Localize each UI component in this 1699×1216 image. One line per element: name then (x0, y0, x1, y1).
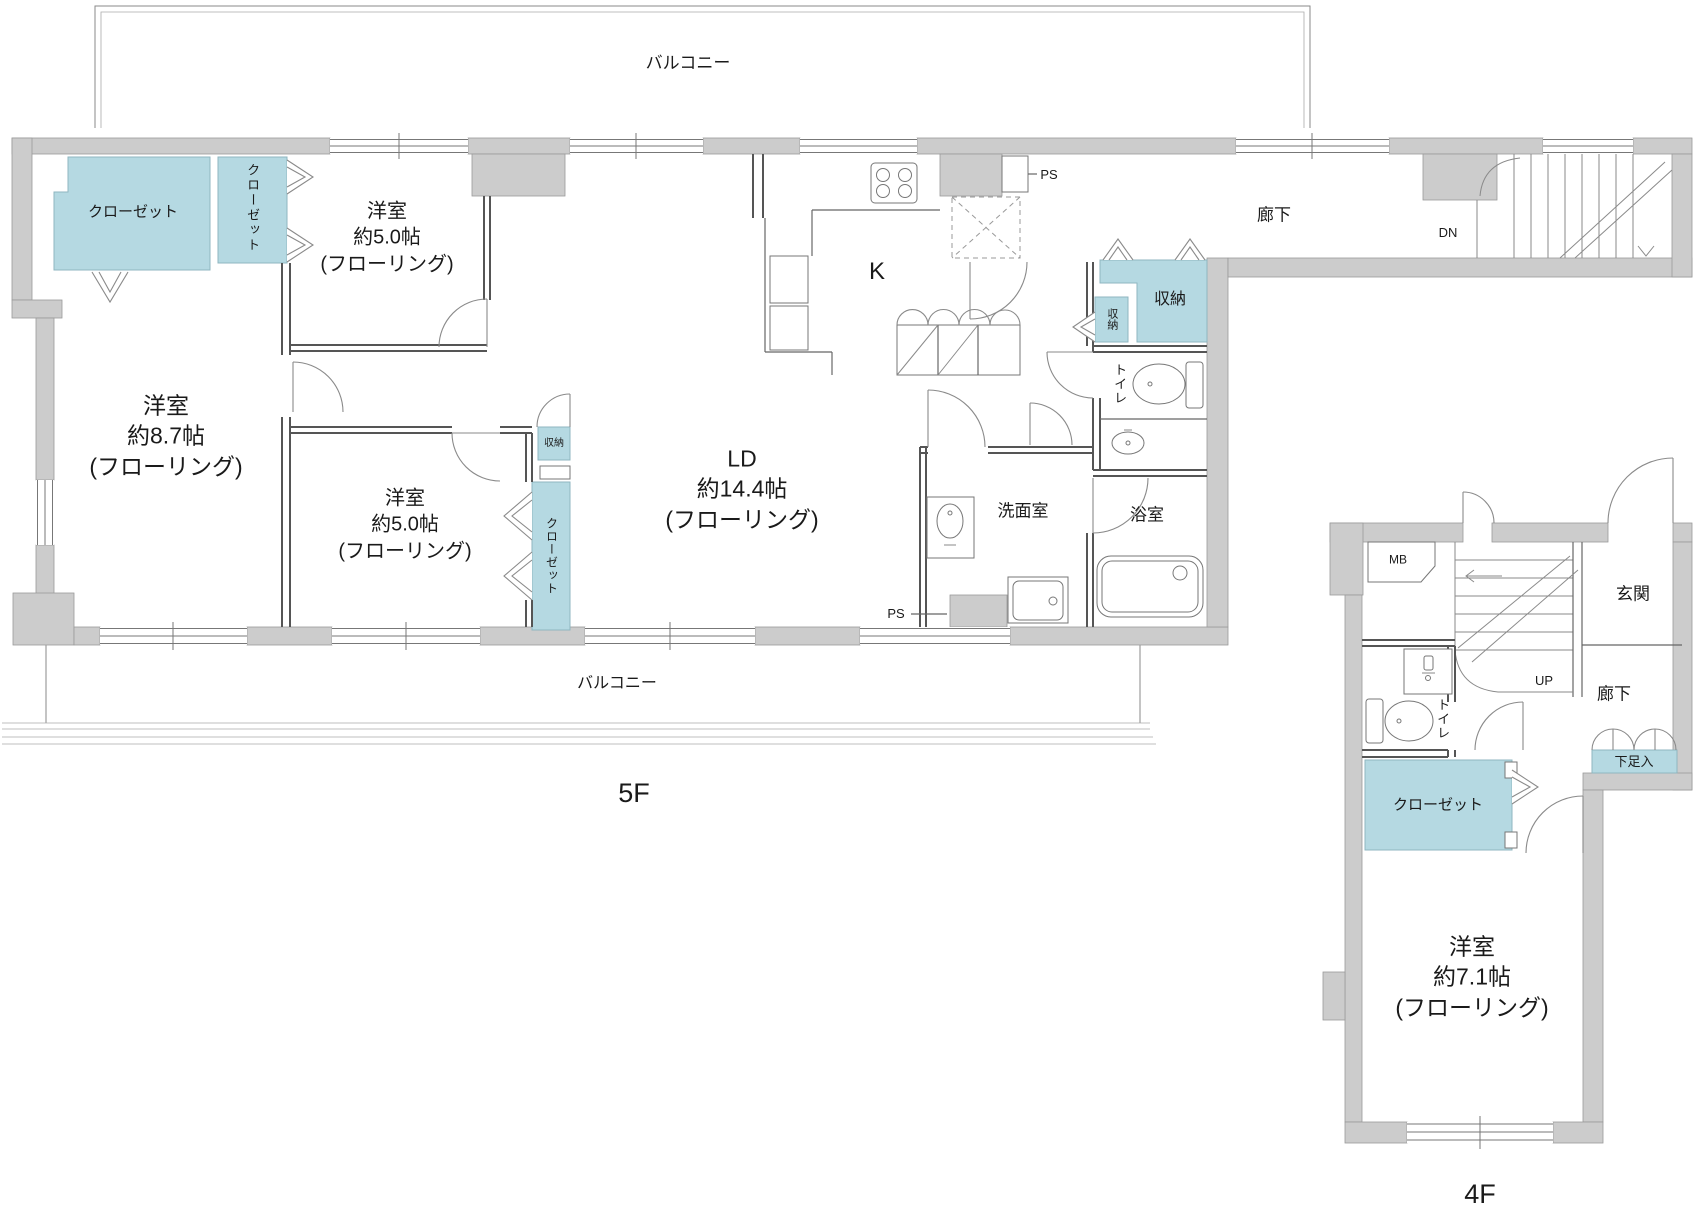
stairs-5f (1477, 154, 1672, 258)
door-swing (439, 299, 487, 347)
door-swing (928, 390, 985, 447)
window (860, 627, 1010, 645)
balcony-bottom-outline (2, 645, 1156, 744)
shoe-box-label: 下足入 (1614, 754, 1653, 770)
balcony-top-label: バルコニー (646, 52, 731, 73)
kitchen-void-shaft (952, 197, 1020, 258)
up-label: UP (1535, 673, 1553, 689)
window (1407, 1116, 1553, 1149)
bathroom-label: 浴室 (1130, 504, 1164, 525)
door-swing (1475, 702, 1523, 750)
toilet-5f-label: トイレ (1111, 363, 1127, 405)
window (100, 622, 247, 650)
meter-box-label: MB (1389, 553, 1407, 568)
window (332, 622, 480, 650)
door-swing (452, 433, 500, 481)
bifold-door-icon (1175, 239, 1205, 260)
door-swing (1526, 796, 1583, 853)
window (800, 138, 917, 154)
window (330, 133, 468, 159)
ps-top-label: PS (1040, 167, 1057, 183)
hall-cabinet (897, 310, 1020, 376)
floor5-label: 5F (618, 777, 650, 811)
toilet-icon-4f (1366, 699, 1433, 743)
bathtub-icon (1097, 556, 1203, 617)
hallway-4f-label: 廊下 (1597, 683, 1631, 704)
washbasin-icon (927, 497, 974, 558)
window (1543, 138, 1633, 154)
shuno-small-label: 収納 (1104, 308, 1118, 330)
ps-bottom-label: PS (887, 606, 904, 622)
balcony-bottom-label: バルコニー (577, 674, 657, 694)
window (36, 480, 54, 545)
bedroom-4f-label: 洋室 約7.1帖 (フローリング) (1395, 931, 1548, 1022)
kitchen-label: K (869, 257, 885, 287)
stairs-4f (1455, 542, 1582, 697)
closet-strip-label: クローゼット (544, 517, 559, 595)
window (1236, 133, 1389, 159)
bifold-door-icon (1512, 770, 1538, 804)
floor-plan-page: バルコニー クローゼット クローゼット 洋室 約5.0帖 (フローリング) 洋室… (0, 0, 1699, 1216)
bifold-door-icon (1103, 239, 1133, 260)
door-swing (1608, 458, 1673, 523)
bedroom2-label: 洋室 約8.7帖 (フローリング) (89, 390, 242, 481)
door-swing (1047, 352, 1093, 398)
closet-4f-label: クローゼット (1393, 797, 1483, 816)
bedroom3-label: 洋室 約5.0帖 (フローリング) (338, 485, 471, 564)
bedroom1-label: 洋室 約5.0帖 (フローリング) (320, 198, 453, 277)
closet2-label: クローゼット (244, 163, 260, 253)
closet1-label: クローゼット (88, 204, 178, 223)
bifold-door-icon (504, 492, 532, 540)
toilet-icon-5f (1133, 362, 1203, 408)
hand-basin-icon (1112, 430, 1144, 454)
washroom-label: 洗面室 (998, 500, 1049, 521)
double-door-icon (1592, 729, 1676, 750)
washbasin-icon-4f (1404, 649, 1452, 694)
bifold-door-icon (504, 552, 532, 600)
washing-machine-icon (1008, 577, 1068, 623)
toilet-4f-label: トイレ (1434, 698, 1450, 740)
floor4-label: 4F (1464, 1178, 1496, 1212)
door-swing (1030, 403, 1072, 445)
pipe-shaft-top (1002, 156, 1037, 192)
hallway-5f-label: 廊下 (1257, 204, 1291, 225)
stove-icon (871, 163, 917, 203)
door-swing (537, 394, 570, 427)
dn-label: DN (1439, 225, 1458, 241)
door-swing (1463, 492, 1494, 523)
door-swing (293, 362, 343, 412)
window (570, 133, 703, 159)
bifold-door-icon (92, 272, 128, 302)
bifold-door-icon (287, 160, 313, 194)
living-dining-label: LD 約14.4帖 (フローリング) (665, 443, 818, 534)
bifold-door-icon (1073, 312, 1095, 342)
entrance-label: 玄関 (1616, 583, 1650, 604)
window (585, 622, 755, 650)
bifold-door-icon (287, 228, 313, 262)
shuno-mid-label: 収納 (544, 438, 564, 451)
shuno-big-label: 収納 (1154, 290, 1186, 310)
